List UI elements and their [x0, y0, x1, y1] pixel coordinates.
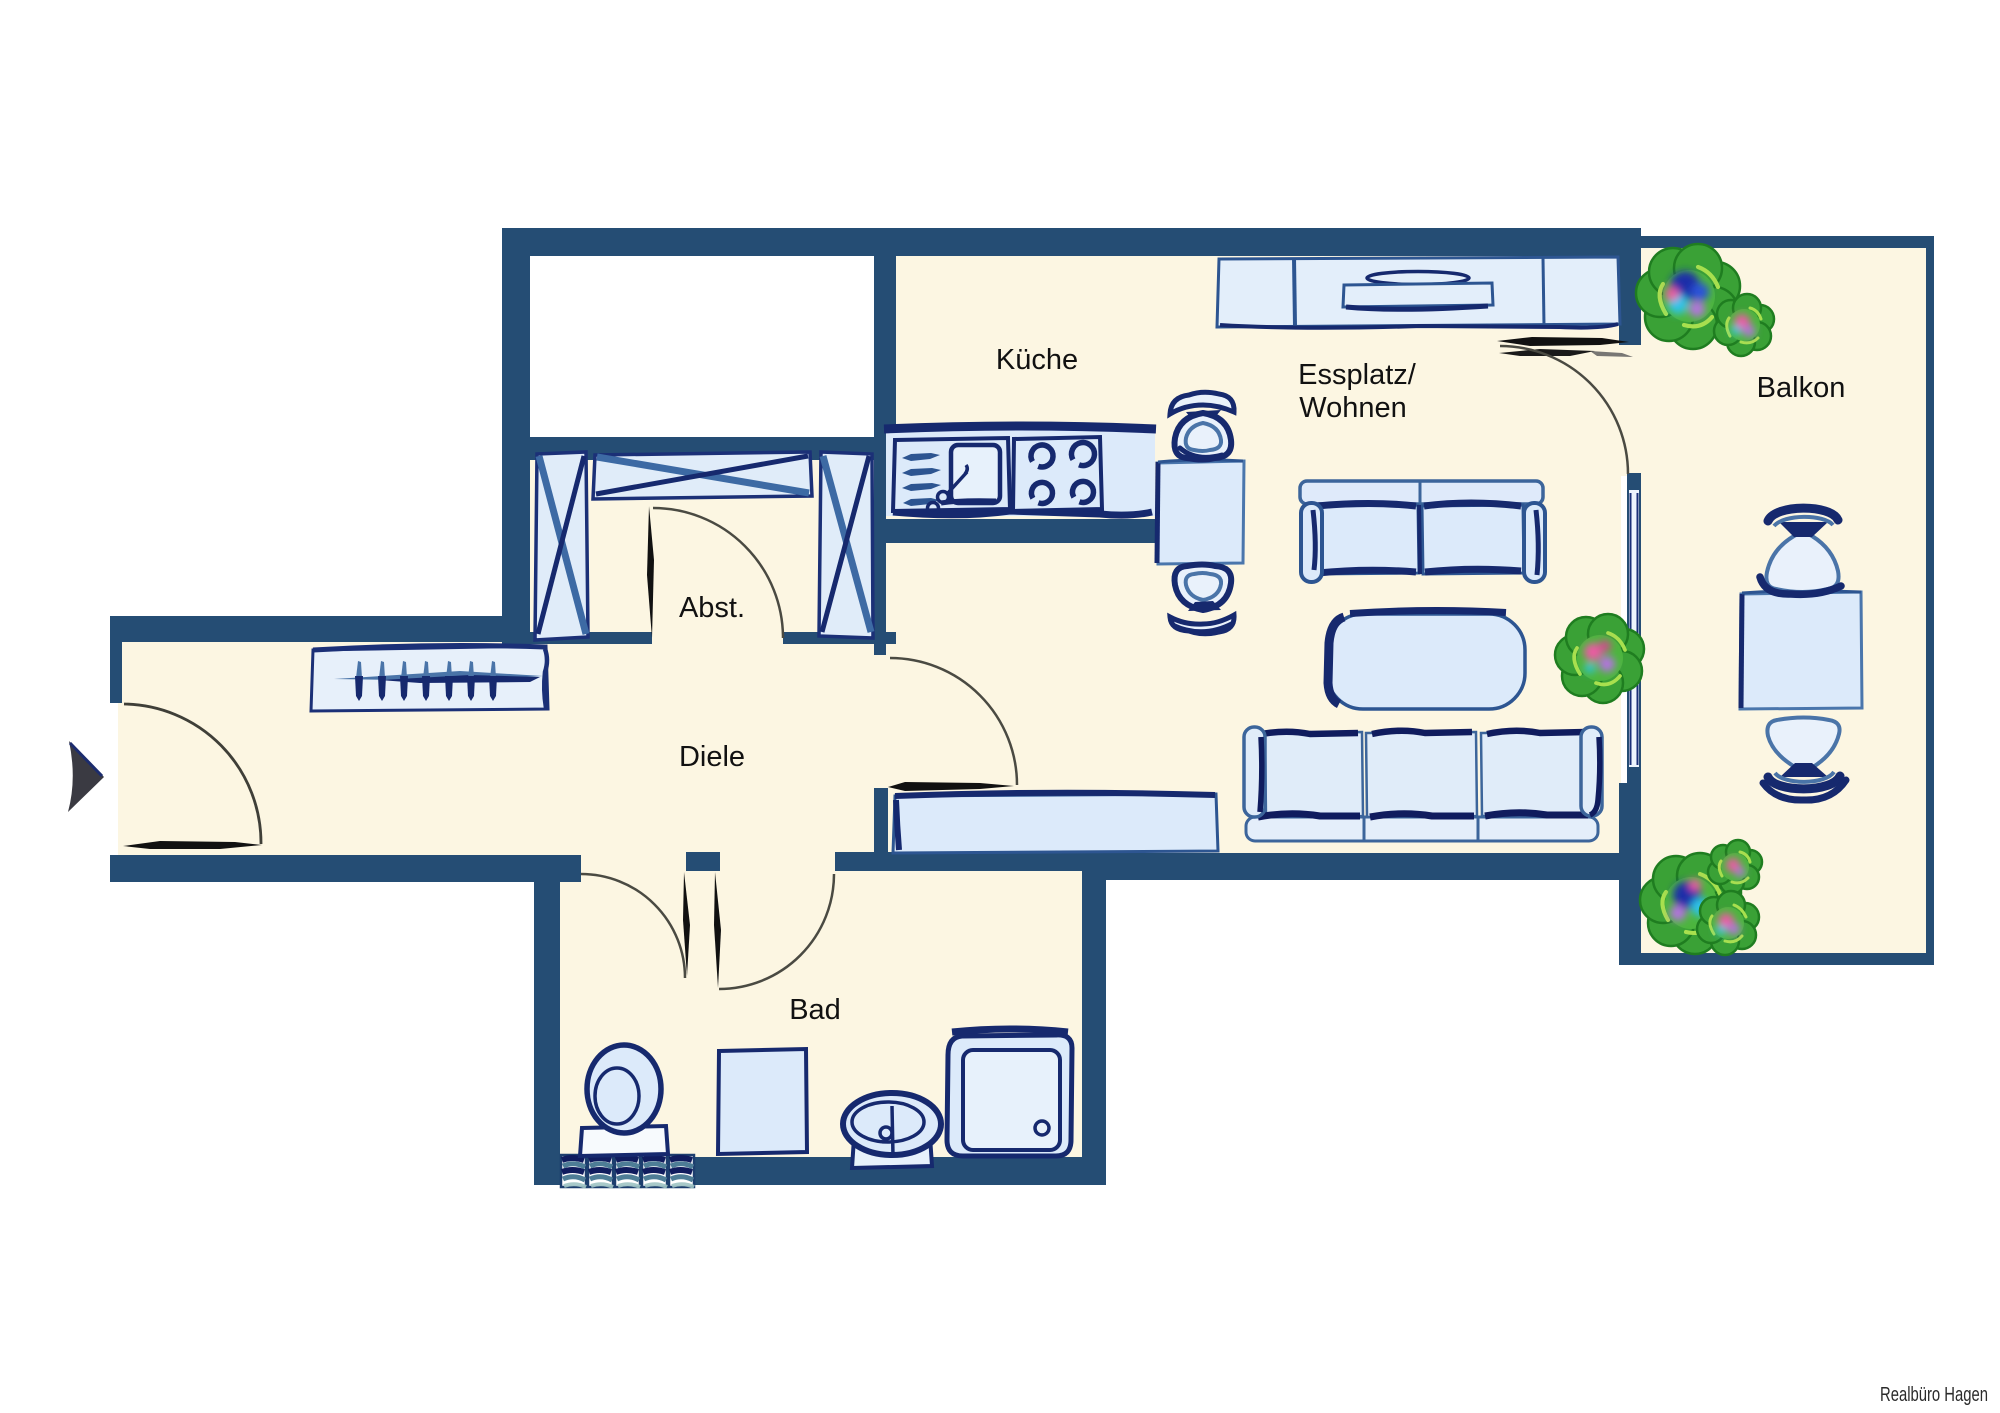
- svg-text:Wohnen: Wohnen: [1299, 392, 1407, 424]
- svg-text:Diele: Diele: [679, 741, 745, 773]
- svg-text:Bad: Bad: [789, 994, 841, 1026]
- svg-text:Essplatz/: Essplatz/: [1298, 359, 1417, 391]
- svg-text:Realbüro Hagen: Realbüro Hagen: [1880, 1384, 1988, 1406]
- svg-text:Abst.: Abst.: [679, 592, 745, 624]
- svg-text:Küche: Küche: [996, 344, 1078, 376]
- svg-text:Balkon: Balkon: [1757, 372, 1846, 404]
